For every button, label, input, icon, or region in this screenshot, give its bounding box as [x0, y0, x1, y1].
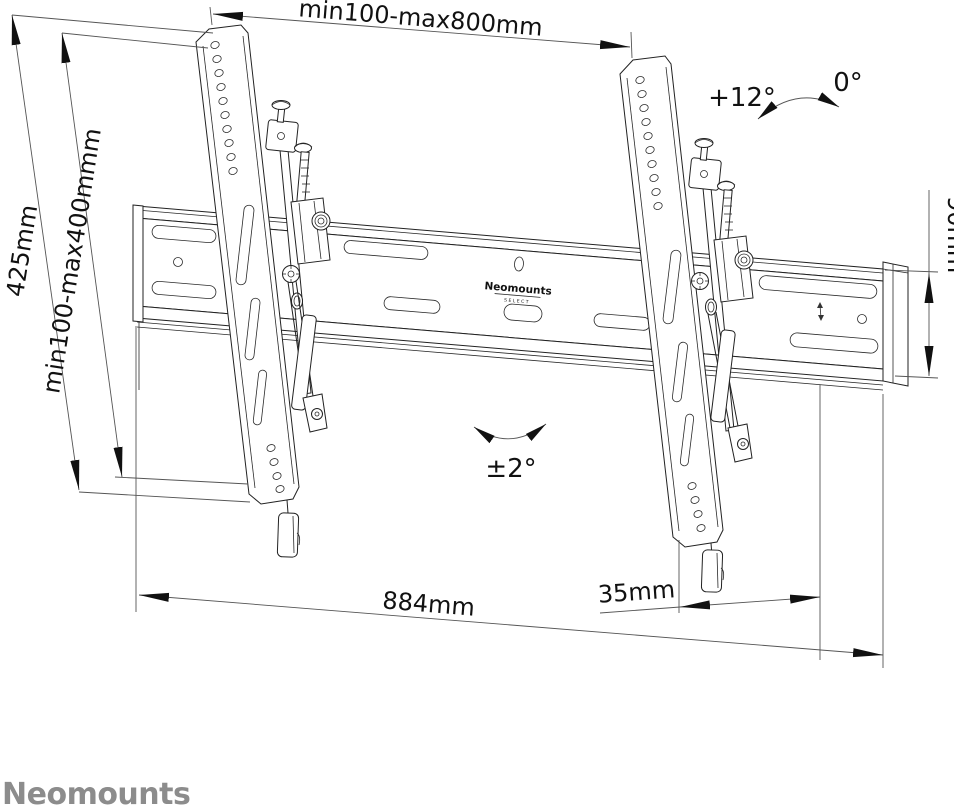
- left-tilt-knob: [312, 212, 330, 230]
- left-pull-tab: [277, 500, 299, 557]
- dim-left-outer-label: 425mm: [1, 203, 43, 299]
- dim-top-width-label: min100-max800mm: [298, 0, 544, 42]
- rail-left-edge: [133, 205, 143, 322]
- tilt-max-label: +12°: [708, 83, 776, 113]
- tilt-zero-label: 0°: [833, 68, 863, 98]
- left-adjust-screw: [266, 101, 299, 153]
- right-bolt: [714, 181, 753, 302]
- right-pivot-nut: [692, 273, 709, 290]
- dim-left-inner-label: min100-max400mmm: [37, 126, 107, 395]
- right-clamp-block: [714, 236, 753, 302]
- right-tilt-knob: [735, 251, 753, 269]
- left-pivot-ring: [292, 293, 303, 309]
- right-hook: [728, 424, 752, 462]
- technical-drawing-page: Neomounts SELECT: [0, 0, 954, 805]
- left-bolt: [291, 143, 330, 264]
- right-adjust-screw: [689, 139, 722, 191]
- dim-right-height-label: 90mm: [942, 196, 954, 273]
- tilt-angle-annotation: +12° 0°: [708, 68, 863, 119]
- wall-mount-diagram: Neomounts SELECT: [0, 0, 954, 805]
- rail-end-cap: [883, 262, 908, 386]
- dim-bottom-width-label: 884mm: [381, 586, 476, 621]
- left-pivot-nut: [283, 266, 300, 283]
- dim-top-width: min100-max800mm: [210, 0, 632, 58]
- left-hook: [303, 394, 327, 432]
- right-pull-tab: [701, 543, 723, 592]
- dim-bottom-offset-label: 35mm: [597, 575, 676, 608]
- left-clamp-block: [291, 198, 330, 264]
- level-adjust-label: ±2°: [485, 454, 536, 484]
- level-angle-annotation: ±2°: [474, 424, 546, 484]
- brand-logo: Neomounts: [2, 777, 190, 805]
- right-pivot-ring: [706, 299, 717, 315]
